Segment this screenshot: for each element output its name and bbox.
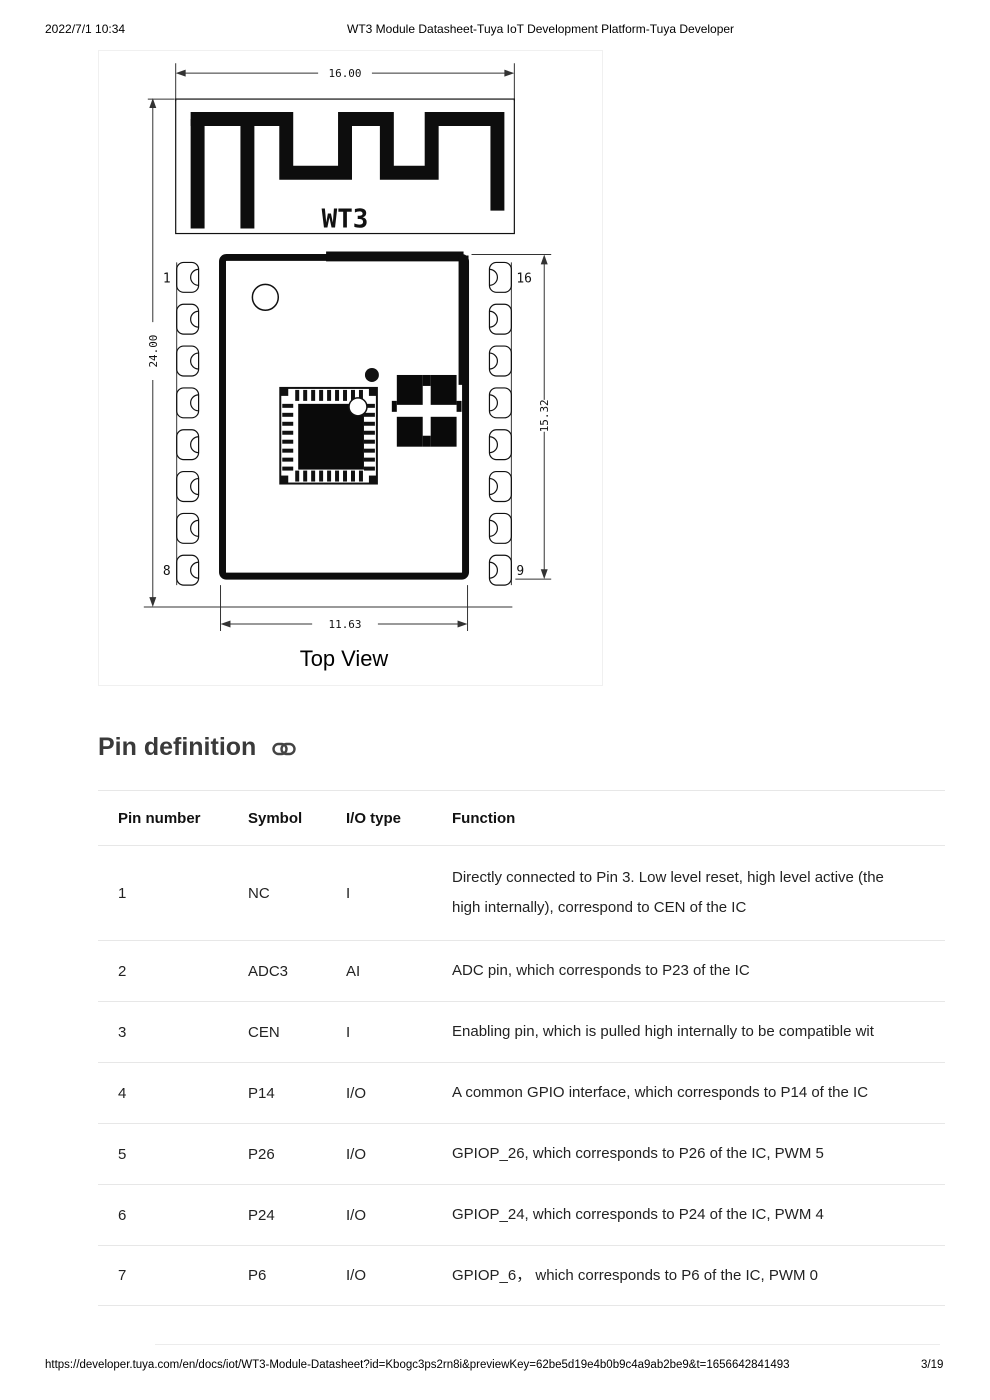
castellated-pads-right: [489, 262, 511, 585]
datasheet-page: 2022/7/1 10:34 WT3 Module Datasheet-Tuya…: [0, 0, 990, 1400]
cell-symbol: P14: [248, 1085, 346, 1102]
print-footer-url: https://developer.tuya.com/en/docs/iot/W…: [45, 1359, 790, 1371]
cell-function: GPIOP_26, which corresponds to P26 of th…: [452, 1139, 945, 1169]
cell-io: I: [346, 1024, 452, 1041]
module-drawing-svg: 16.00 WT3 24.00: [99, 51, 602, 685]
col-header-pin-number: Pin number: [118, 810, 248, 827]
col-header-io-type: I/O type: [346, 810, 452, 827]
cell-pin: 2: [118, 963, 248, 980]
cell-io: I/O: [346, 1085, 452, 1102]
antenna-meander-trace: [191, 119, 498, 211]
cell-io: I/O: [346, 1267, 452, 1284]
drawing-caption: Top View: [300, 646, 389, 671]
table-header-row: Pin number Symbol I/O type Function: [98, 790, 945, 845]
table-row: 4 P14 I/O A common GPIO interface, which…: [98, 1062, 945, 1123]
cell-pin: 1: [118, 885, 248, 902]
table-row: 7 P6 I/O GPIOP_6， which corresponds to P…: [98, 1245, 945, 1306]
print-footer-page-number: 3/19: [921, 1359, 943, 1371]
cell-function: ADC pin, which corresponds to P23 of the…: [452, 956, 945, 986]
dim-overall-width: 16.00: [329, 67, 362, 80]
cell-io: I/O: [346, 1146, 452, 1163]
mounting-hole: [252, 284, 278, 310]
table-row: 3 CEN I Enabling pin, which is pulled hi…: [98, 1001, 945, 1062]
cell-io: AI: [346, 963, 452, 980]
dim-overall-height: 24.00: [147, 335, 160, 368]
cell-symbol: NC: [248, 885, 346, 902]
cell-pin: 7: [118, 1267, 248, 1284]
dim-body-width: 11.63: [329, 618, 362, 631]
print-header-date: 2022/7/1 10:34: [45, 22, 125, 36]
section-heading: Pin definition: [98, 730, 296, 764]
test-pads-cross: [392, 375, 462, 447]
pin-marker-1: 1: [163, 271, 171, 286]
cell-function: GPIOP_6， which corresponds to P6 of the …: [452, 1261, 945, 1291]
table-row: 1 NC I Directly connected to Pin 3. Low …: [98, 845, 945, 940]
cell-function: GPIOP_24, which corresponds to P24 of th…: [452, 1200, 945, 1230]
cell-io: I/O: [346, 1207, 452, 1224]
print-header-title: WT3 Module Datasheet-Tuya IoT Developmen…: [347, 22, 734, 36]
cell-symbol: P26: [248, 1146, 346, 1163]
cell-function: A common GPIO interface, which correspon…: [452, 1078, 945, 1108]
cell-function: Enabling pin, which is pulled high inter…: [452, 1017, 945, 1047]
cell-symbol: P6: [248, 1267, 346, 1284]
cell-pin: 4: [118, 1085, 248, 1102]
ic-chip: [280, 388, 377, 484]
table-row: 6 P24 I/O GPIOP_24, which corresponds to…: [98, 1184, 945, 1245]
cell-io: I: [346, 885, 452, 902]
link-icon[interactable]: [272, 735, 296, 764]
col-header-function: Function: [452, 810, 945, 827]
pin-marker-16: 16: [516, 271, 532, 286]
module-top-view-drawing: 16.00 WT3 24.00: [98, 50, 603, 686]
cell-symbol: CEN: [248, 1024, 346, 1041]
module-silkscreen-label: WT3: [322, 205, 369, 235]
section-heading-text: Pin definition: [98, 733, 256, 762]
table-row: 2 ADC3 AI ADC pin, which corresponds to …: [98, 940, 945, 1001]
pin-marker-9: 9: [516, 564, 524, 579]
cell-pin: 3: [118, 1024, 248, 1041]
castellated-pads-left: [177, 262, 199, 585]
page-bottom-divider: [155, 1344, 940, 1345]
cell-symbol: ADC3: [248, 963, 346, 980]
pin-marker-8: 8: [163, 564, 171, 579]
cell-pin: 6: [118, 1207, 248, 1224]
cell-function: Directly connected to Pin 3. Low level r…: [452, 863, 945, 923]
table-row: 5 P26 I/O GPIOP_26, which corresponds to…: [98, 1123, 945, 1184]
dim-body-height: 15.32: [538, 399, 551, 432]
antenna-trace-legs: [198, 119, 248, 229]
cell-symbol: P24: [248, 1207, 346, 1224]
col-header-symbol: Symbol: [248, 810, 346, 827]
fiducial-dot: [365, 368, 379, 382]
cell-pin: 5: [118, 1146, 248, 1163]
pin-definition-table: Pin number Symbol I/O type Function 1 NC…: [98, 790, 945, 1306]
